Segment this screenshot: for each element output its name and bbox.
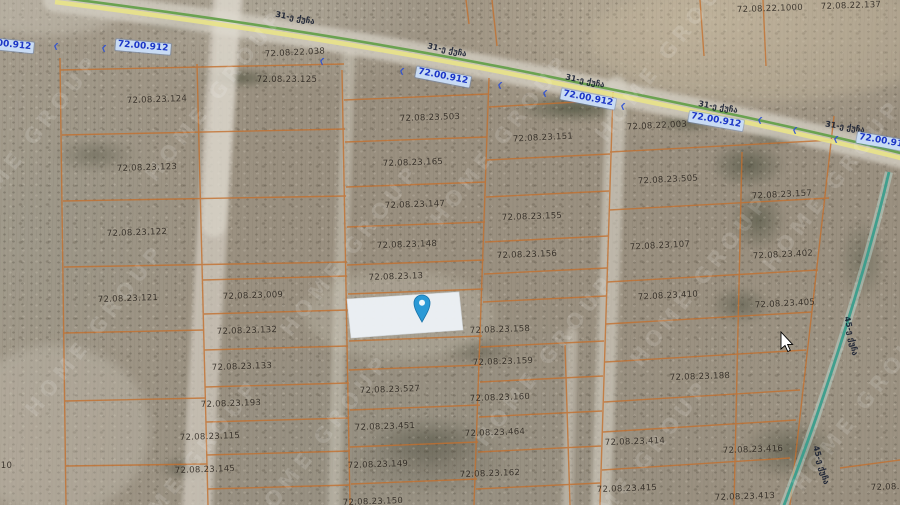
road-code-label: 72.00.912 (115, 39, 170, 55)
road-code-label: 72.00.912 (560, 88, 616, 109)
road-direction-arrow-icon: ❮ (756, 116, 763, 125)
parcel-code-label: 72.08.23.110 (0, 461, 12, 471)
parcel-code-label: 72.08.23.155 (502, 211, 563, 223)
parcel-code-label: 72.08.23.150 (343, 496, 404, 505)
parcel-code-label: 72.08.23.505 (638, 173, 699, 186)
watermark-text: HOME GROUP (0, 49, 105, 231)
parcel-code-label: 72.08.23.402 (753, 248, 814, 261)
parcel-code-label: 72.08.23.188 (670, 371, 731, 383)
parcel-code-label: 72.08.23.159 (473, 356, 534, 368)
road-direction-arrow-icon: ❮ (52, 42, 59, 51)
watermark-text: HOME GROUP (787, 314, 900, 496)
parcel-code-label: 72.08.23.145 (175, 464, 236, 476)
parcel-code-label: 72.08.23.162 (460, 468, 521, 480)
parcel-code-label: 72.08.23.147 (385, 199, 446, 211)
parcel-code-label: 72.08.23.151 (513, 131, 574, 144)
road-direction-arrow-icon: ❮ (398, 67, 405, 76)
map-labels-layer: HOME GROUPHOME GROUPHOME GROUPHOME GROUP… (0, 0, 900, 505)
parcel-code-label: 72.08.23.451 (355, 421, 416, 433)
parcel-code-label: 72.08.23.009 (223, 290, 284, 302)
parcel-code-label: 72.08.23.503 (400, 112, 461, 124)
parcel-code-label: 72.08.23.464 (465, 427, 526, 439)
road-direction-arrow-icon: ❮ (496, 81, 503, 90)
parcel-code-label: 72.08.23.156 (497, 249, 558, 261)
parcel-code-label: 72.08.23.125 (257, 75, 317, 85)
road-name-label: 31-ე ქუჩა (427, 41, 468, 58)
side-road-name-label: 45-ე ქუჩა (842, 316, 859, 357)
parcel-code-label: 72.08.22.137 (821, 0, 882, 12)
parcel-code-label: 72.08.22.003 (627, 119, 688, 132)
parcel-code-label: 72.08.23.415 (597, 483, 658, 495)
parcel-code-label: 72.08.22.1000 (737, 3, 803, 15)
parcel-code-label: 72.08.23.149 (348, 459, 409, 471)
road-direction-arrow-icon: ❮ (100, 44, 107, 53)
parcel-code-label: 72.08.22.038 (265, 46, 326, 59)
road-name-label: 31-ე ქუჩა (565, 72, 606, 89)
road-direction-arrow-icon: ❮ (318, 57, 325, 66)
parcel-code-label: 72.08.23.158 (470, 324, 531, 336)
parcel-code-label: 72.08.23.527 (360, 384, 421, 396)
parcel-code-label: 72.08.23.121 (98, 293, 159, 305)
road-code-label: 72.00.912 (415, 66, 471, 87)
parcel-code-label: 72.08.23.405 (755, 297, 816, 310)
parcel-code-label: 72.08.23.160 (470, 392, 531, 404)
parcel-code-label: 72.08.23.165 (383, 157, 444, 169)
parcel-code-label: 72.08.23.124 (127, 94, 188, 106)
watermark-text: HOME GROUP (625, 189, 774, 371)
road-direction-arrow-icon: ❮ (791, 126, 798, 135)
parcel-code-label: 72.08.23.107 (630, 239, 691, 252)
parcel-code-label: 72.08.23.193 (201, 398, 262, 410)
parcel-code-label: 72.08.23.133 (212, 361, 273, 373)
parcel-code-label: 72.08.23.132 (217, 325, 278, 337)
parcel-code-label: 72.08.23.416 (723, 444, 784, 456)
parcel-code-label: 72.08.23.13 (369, 271, 424, 283)
parcel-code-label: 72.08.23.123 (117, 162, 178, 174)
road-direction-arrow-icon: ❮ (832, 135, 839, 144)
parcel-code-label: 72.08.23.418 (871, 481, 900, 493)
parcel-code-label: 72.08.23.148 (377, 239, 438, 251)
parcel-code-label: 72.08.23.414 (605, 436, 666, 448)
watermark-text: HOME GROUP (20, 239, 169, 421)
road-code-label: 72.00.912 (0, 37, 34, 54)
parcel-code-label: 72.08.23.413 (715, 491, 776, 503)
parcel-code-label: 72.08.23.157 (752, 188, 813, 201)
parcel-code-label: 72.08.23.122 (107, 227, 168, 239)
parcel-code-label: 72.08.23.115 (180, 431, 241, 443)
map-canvas[interactable]: HOME GROUPHOME GROUPHOME GROUPHOME GROUP… (0, 0, 900, 505)
